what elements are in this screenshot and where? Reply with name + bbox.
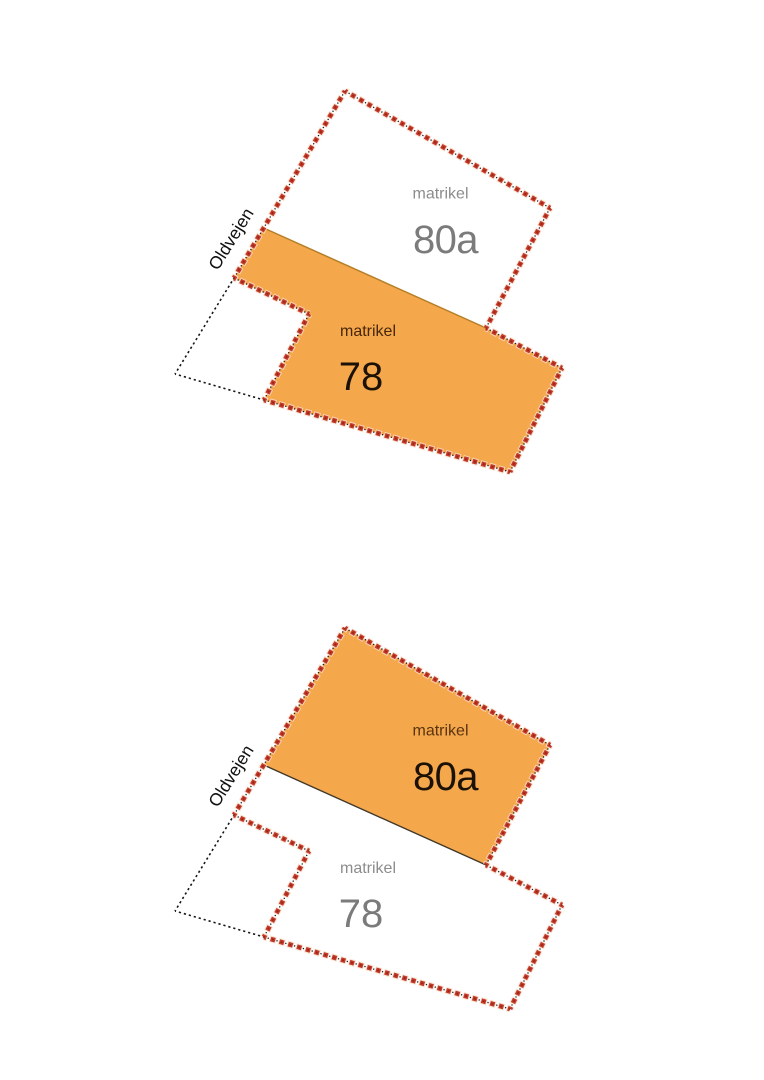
svg-text:78: 78 [339,355,384,399]
svg-text:80a: 80a [413,218,479,262]
svg-text:matrikel: matrikel [412,186,468,203]
svg-text:matrikel: matrikel [412,723,468,740]
svg-text:matrikel: matrikel [340,323,396,340]
svg-text:78: 78 [339,892,384,936]
svg-text:matrikel: matrikel [340,860,396,877]
svg-text:80a: 80a [413,755,479,799]
